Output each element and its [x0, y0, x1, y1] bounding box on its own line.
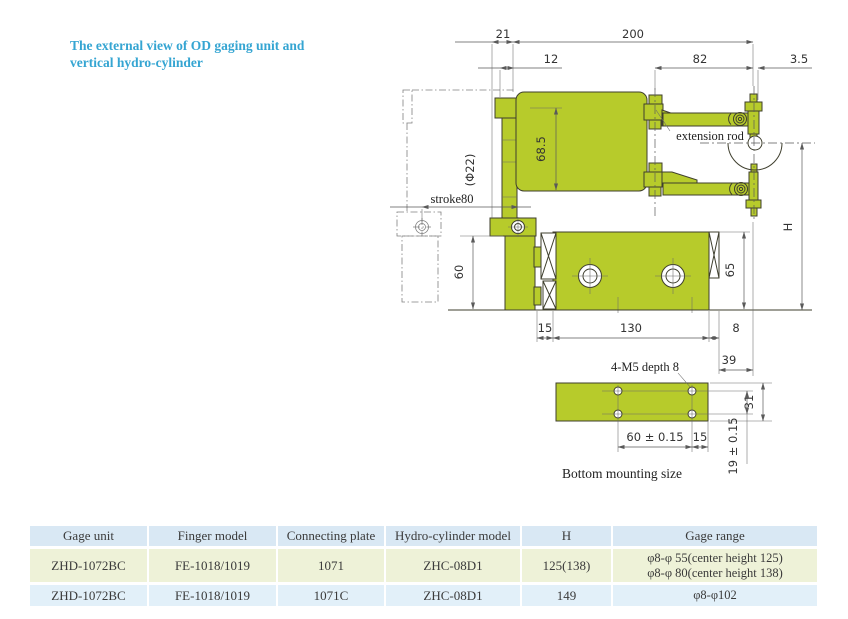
- dim-21: 21: [496, 27, 511, 41]
- dim-130: 130: [620, 321, 642, 335]
- cell-finger-model: FE-1018/1019: [149, 585, 276, 606]
- cell-gage-unit: ZHD-1072BC: [30, 585, 147, 606]
- dim-phi22: (Φ22): [463, 154, 477, 187]
- col-header-gage-range: Gage range: [613, 526, 817, 546]
- dim-3-5: 3.5: [790, 52, 808, 66]
- col-header-hydro-cylinder-model: Hydro-cylinder model: [386, 526, 520, 546]
- dim-H: H: [781, 223, 795, 232]
- table-row: ZHD-1072BC FE-1018/1019 1071C ZHC-08D1 1…: [30, 585, 817, 606]
- col-header-connecting-plate: Connecting plate: [278, 526, 384, 546]
- workpiece: [655, 86, 815, 222]
- cell-gage-unit: ZHD-1072BC: [30, 549, 147, 582]
- cell-gage-range: φ8-φ102: [613, 585, 817, 606]
- dim-39: 39: [722, 353, 737, 367]
- gage-range-line: φ8-φ 55(center height 125): [615, 551, 815, 566]
- cell-finger-model: FE-1018/1019: [149, 549, 276, 582]
- extension-rod-label: extension rod: [676, 129, 744, 143]
- dim-82: 82: [693, 52, 708, 66]
- technical-drawing: 21 200 12 82 3.5 68.5 (Φ22) stroke80 ext…: [0, 0, 848, 505]
- cell-connecting-plate: 1071C: [278, 585, 384, 606]
- gage-range-line: φ8-φ 80(center height 138): [615, 566, 815, 581]
- thread-note: 4-M5 depth 8: [611, 360, 679, 374]
- dim-200: 200: [622, 27, 644, 41]
- dim-60: 60: [452, 265, 466, 280]
- gage-range-line: φ8-φ102: [615, 588, 815, 603]
- lower-extension-rod: [644, 163, 761, 216]
- catalog-page: The external view of OD gaging unit and …: [0, 0, 848, 619]
- table-header-row: Gage unit Finger model Connecting plate …: [30, 526, 817, 546]
- cell-h: 125(138): [522, 549, 611, 582]
- dim-65: 65: [723, 263, 737, 278]
- col-header-h: H: [522, 526, 611, 546]
- dim-12: 12: [544, 52, 559, 66]
- cell-hydro-cylinder-model: ZHC-08D1: [386, 549, 520, 582]
- cell-hydro-cylinder-model: ZHC-08D1: [386, 585, 520, 606]
- dim-19-tol: 19 ± 0.15: [726, 417, 740, 474]
- dim-15-front: 15: [538, 321, 553, 335]
- spec-table: Gage unit Finger model Connecting plate …: [28, 523, 819, 609]
- dim-31: 31: [742, 395, 756, 410]
- col-header-finger-model: Finger model: [149, 526, 276, 546]
- table-row: ZHD-1072BC FE-1018/1019 1071 ZHC-08D1 12…: [30, 549, 817, 582]
- dim-8: 8: [732, 321, 739, 335]
- stroke80-label: stroke80: [430, 192, 473, 206]
- dim-60-tol: 60 ± 0.15: [626, 430, 683, 444]
- cell-gage-range: φ8-φ 55(center height 125) φ8-φ 80(cente…: [613, 549, 817, 582]
- cell-h: 149: [522, 585, 611, 606]
- col-header-gage-unit: Gage unit: [30, 526, 147, 546]
- dim-68-5: 68.5: [534, 136, 548, 162]
- dim-15-bottom: 15: [693, 430, 708, 444]
- bottom-caption: Bottom mounting size: [562, 466, 682, 481]
- cell-connecting-plate: 1071: [278, 549, 384, 582]
- base-block: [448, 232, 812, 313]
